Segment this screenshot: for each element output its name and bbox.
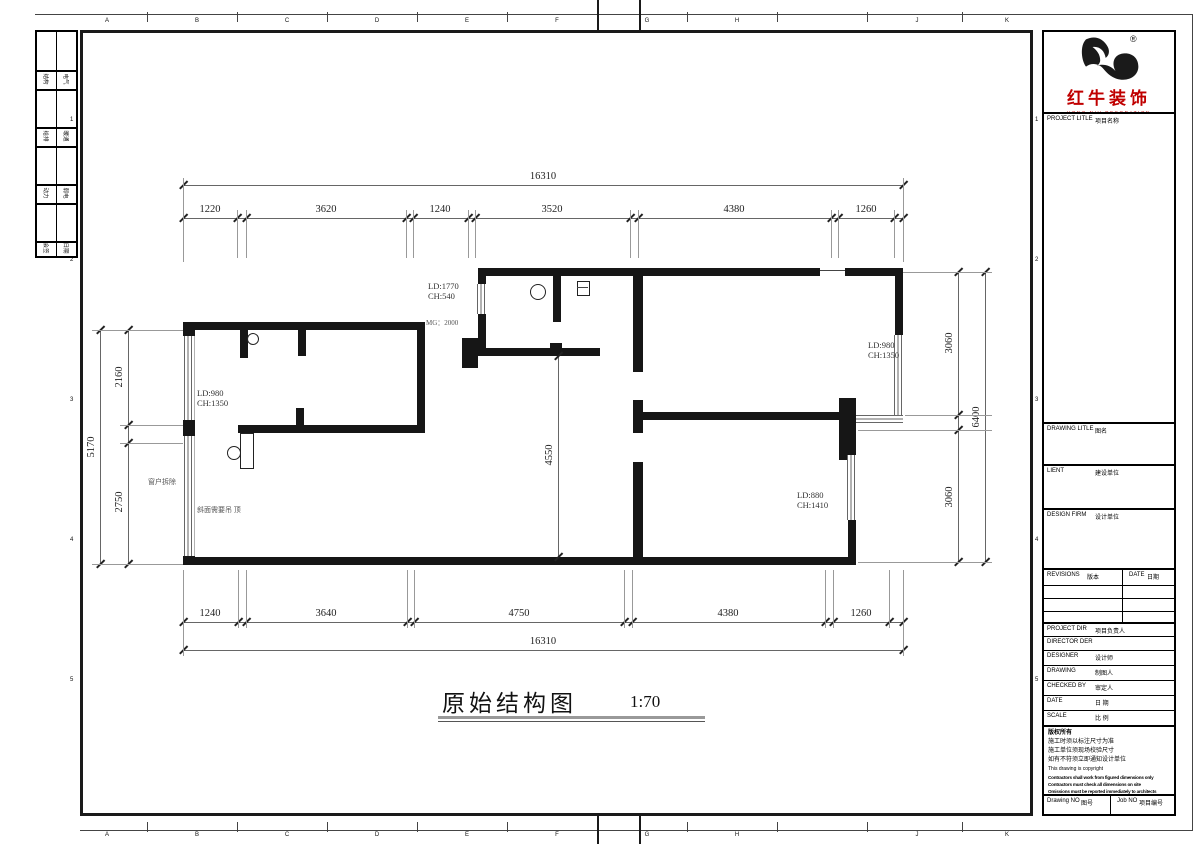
- copyright-line: 版权所有: [1044, 729, 1174, 738]
- brand-area: ® 红牛装饰 HONG NIU DECORATION: [1044, 32, 1174, 112]
- field-label-zh: 版本: [1087, 572, 1099, 581]
- ruler-tick: [867, 822, 868, 832]
- dim-text: 3060: [944, 319, 956, 367]
- dim-text: 4750: [489, 608, 549, 619]
- field-label-en: DRAWING LITLE: [1047, 426, 1095, 435]
- dim-text: 1240: [410, 204, 470, 215]
- window: [184, 436, 195, 556]
- field-label-zh: 图名: [1095, 426, 1107, 435]
- copyright-line: 施工时须以标注尺寸为准: [1044, 738, 1174, 747]
- wall: [183, 557, 856, 565]
- revisions-table: REVISIONS版本 DATE日期: [1044, 568, 1174, 622]
- field-label-en: DRAWING: [1047, 668, 1095, 677]
- window: [477, 284, 487, 314]
- grid-number: 3: [1035, 397, 1038, 403]
- wall: [895, 268, 903, 335]
- meter-symbol-line: [577, 287, 588, 288]
- door-notch: [550, 343, 562, 348]
- number-row-divider: [1110, 796, 1111, 816]
- drawing-sheet: A B C D E F G H J K A B C D E F G H J K …: [0, 0, 1200, 844]
- field-label-zh: 比 例: [1095, 713, 1109, 722]
- field-design-firm: DESIGN FIRM设计单位: [1044, 508, 1174, 568]
- field-label-en: CHECKED BY: [1047, 683, 1095, 692]
- dim-line: [183, 622, 903, 623]
- field-label-en: DATE: [1129, 572, 1147, 581]
- field-label-en: LIENT: [1047, 468, 1095, 477]
- dim-text: 1260: [836, 204, 896, 215]
- bull-logo-icon: [1074, 35, 1146, 83]
- dim-text: 2750: [114, 478, 126, 526]
- revisions-line: [1044, 598, 1174, 599]
- wall-block: [462, 338, 478, 368]
- copyright-line: 如有不符须立即通知设计单位: [1044, 756, 1174, 765]
- field-label-zh: 日 期: [1095, 698, 1109, 707]
- window: [847, 455, 857, 520]
- wall: [478, 276, 486, 284]
- field-label-en: PROJECT LITLE: [1047, 116, 1095, 125]
- ruler-tick: [417, 822, 418, 832]
- wall-pier: [296, 408, 304, 425]
- revisions-divider: [1122, 570, 1123, 624]
- field-label-zh: 项目负责人: [1095, 626, 1125, 635]
- field-label-en: DIRECTOR DER: [1047, 639, 1095, 645]
- field-label-zh: 设计师: [1095, 653, 1113, 662]
- window: [894, 335, 904, 415]
- opening-label: CH:540: [428, 291, 455, 301]
- dim-line: [985, 272, 986, 562]
- revisions-line: [1044, 611, 1174, 612]
- field-label-en: Drawing NO: [1047, 798, 1081, 807]
- opening-label: CH:1350: [197, 398, 228, 408]
- grid-letter: F: [551, 832, 563, 838]
- wall: [633, 400, 643, 433]
- wall: [183, 420, 195, 436]
- grid-letter: K: [1001, 832, 1013, 838]
- dim-text: 16310: [513, 636, 573, 647]
- ruler-tick: [962, 822, 963, 832]
- field-label-zh: 图号: [1081, 798, 1093, 807]
- grid-letter: H: [731, 832, 743, 838]
- grid-number: 5: [1035, 677, 1038, 683]
- wall: [238, 425, 425, 433]
- field-label-zh: 审定人: [1095, 683, 1113, 692]
- dim-text: 3060: [944, 473, 956, 521]
- fold-mark: [639, 816, 641, 844]
- grid-number: 4: [1035, 537, 1038, 543]
- field-label-en: PROJECT DIR: [1047, 626, 1095, 635]
- wall: [848, 520, 856, 558]
- drawing-title: 原始结构图: [442, 684, 577, 718]
- window: [184, 336, 195, 420]
- title-underline: [438, 716, 705, 719]
- dim-text: 1260: [831, 608, 891, 619]
- wall: [478, 268, 820, 276]
- grid-letter: A: [101, 832, 113, 838]
- wall-stub: [298, 330, 306, 356]
- grid-letter: E: [461, 832, 473, 838]
- field-director: DIRECTOR DER: [1044, 636, 1174, 650]
- grid-number: 1: [1035, 117, 1038, 123]
- field-label-en: Job NO: [1117, 798, 1139, 807]
- opening-label: CH:1350: [868, 350, 899, 360]
- opening-label: LD:1770: [428, 281, 459, 291]
- ruler-tick: [237, 822, 238, 832]
- opening-label: CH:1410: [797, 500, 828, 510]
- field-label-zh: 制图人: [1095, 668, 1113, 677]
- opening-label: LD:980: [868, 340, 894, 350]
- field-label-zh: 项目编号: [1139, 798, 1163, 807]
- dim-text: 4380: [704, 204, 764, 215]
- dim-text: 1240: [180, 608, 240, 619]
- title-block: ® 红牛装饰 HONG NIU DECORATION PROJECT LITLE…: [1042, 30, 1176, 816]
- outer-border-bottom: [80, 830, 1192, 831]
- opening-label: LD:880: [797, 490, 823, 500]
- door-leaf: [240, 433, 254, 469]
- wall: [633, 462, 643, 557]
- field-date: DATE日 期: [1044, 695, 1174, 710]
- copyright-line: 施工单位须现场校验尺寸: [1044, 747, 1174, 756]
- dim-text: 5170: [86, 423, 98, 471]
- brand-text: 红牛装饰 HONG NIU DECORATION: [1044, 84, 1174, 115]
- dim-line: [183, 650, 903, 651]
- field-label-en: DATE: [1047, 698, 1095, 707]
- pipe-symbol: [247, 333, 259, 345]
- meter-symbol: [577, 281, 590, 296]
- wall: [643, 412, 839, 420]
- copyright-line: Contractors shall work from figured dime…: [1044, 774, 1174, 781]
- brand-name: 红牛装饰: [1044, 84, 1174, 109]
- floor-plan: LD:1770 CH:540 MG：2000 LD:980 CH:1350 LD…: [0, 0, 1030, 816]
- dim-text: 6400: [971, 393, 983, 441]
- dim-text: 1220: [180, 204, 240, 215]
- field-scale: SCALE比 例: [1044, 710, 1174, 725]
- wall: [183, 322, 425, 330]
- dim-line: [958, 272, 959, 562]
- note-window-removal: 窗户拆除: [148, 477, 176, 487]
- dim-text: 3640: [296, 608, 356, 619]
- ruler-tick: [327, 822, 328, 832]
- copyright-line: This drawing is copyright: [1044, 765, 1174, 774]
- dim-text: 3520: [522, 204, 582, 215]
- wall: [417, 330, 425, 433]
- dim-text: 2160: [114, 353, 126, 401]
- drawing-scale: 1:70: [630, 692, 660, 712]
- dim-text: 4550: [544, 431, 556, 479]
- outer-border-right: [1192, 14, 1193, 831]
- revisions-line: [1044, 585, 1174, 586]
- frame-right: [1030, 30, 1033, 816]
- copyright-block: 版权所有 施工时须以标注尺寸为准 施工单位须现场校验尺寸 如有不符须立即通知设计…: [1044, 725, 1174, 794]
- field-label-zh: 设计单位: [1095, 512, 1119, 521]
- wall: [633, 276, 643, 372]
- field-label-en: DESIGNER: [1047, 653, 1095, 662]
- ruler-tick: [687, 822, 688, 832]
- grid-number: 2: [1035, 257, 1038, 263]
- field-client: LIENT建设单位: [1044, 464, 1174, 508]
- field-drawing-by: DRAWING制图人: [1044, 665, 1174, 680]
- opening-label: MG：2000: [426, 318, 458, 328]
- field-label-en: REVISIONS: [1047, 572, 1087, 581]
- grid-letter: D: [371, 832, 383, 838]
- wall-stub: [240, 330, 248, 358]
- grid-letter: B: [191, 832, 203, 838]
- wall: [478, 314, 486, 352]
- number-row: Drawing NO图号 Job NO项目编号: [1044, 794, 1174, 814]
- field-designer: DESIGNER设计师: [1044, 650, 1174, 665]
- grid-letter: C: [281, 832, 293, 838]
- dim-text: 4380: [698, 608, 758, 619]
- wall: [848, 423, 856, 455]
- grid-letter: G: [641, 832, 653, 838]
- field-project-dir: PROJECT DIR项目负责人: [1044, 622, 1174, 636]
- pipe-symbol: [227, 446, 241, 460]
- pipe-symbol: [530, 284, 546, 300]
- note-slope-ceiling: 斜面需要吊 顶: [197, 505, 241, 515]
- ruler-tick: [777, 822, 778, 832]
- field-label-zh: 日期: [1147, 572, 1159, 581]
- dim-text: 3620: [296, 204, 356, 215]
- ruler-tick: [147, 822, 148, 832]
- copyright-line: Contractors must check all dimensions on…: [1044, 781, 1174, 788]
- field-label-zh: 项目名称: [1095, 116, 1119, 125]
- dim-text: 16310: [513, 171, 573, 182]
- fold-mark: [597, 816, 599, 844]
- wall: [553, 276, 561, 322]
- field-drawing-title: DRAWING LITLE图名: [1044, 422, 1174, 464]
- window: [856, 415, 903, 423]
- wall: [478, 348, 600, 356]
- opening-label: LD:980: [197, 388, 223, 398]
- grid-letter: J: [911, 832, 923, 838]
- ruler-tick: [507, 822, 508, 832]
- field-label-en: DESIGN FIRM: [1047, 512, 1095, 521]
- dim-line: [128, 330, 129, 564]
- opening-line: [820, 270, 845, 271]
- field-checked-by: CHECKED BY审定人: [1044, 680, 1174, 695]
- field-project-title: PROJECT LITLE项目名称: [1044, 112, 1174, 422]
- dim-line: [183, 185, 903, 186]
- field-label-en: SCALE: [1047, 713, 1095, 722]
- field-label-zh: 建设单位: [1095, 468, 1119, 477]
- dim-line: [183, 218, 903, 219]
- dim-line: [558, 356, 559, 557]
- title-underline: [438, 721, 705, 722]
- dim-line: [100, 330, 101, 564]
